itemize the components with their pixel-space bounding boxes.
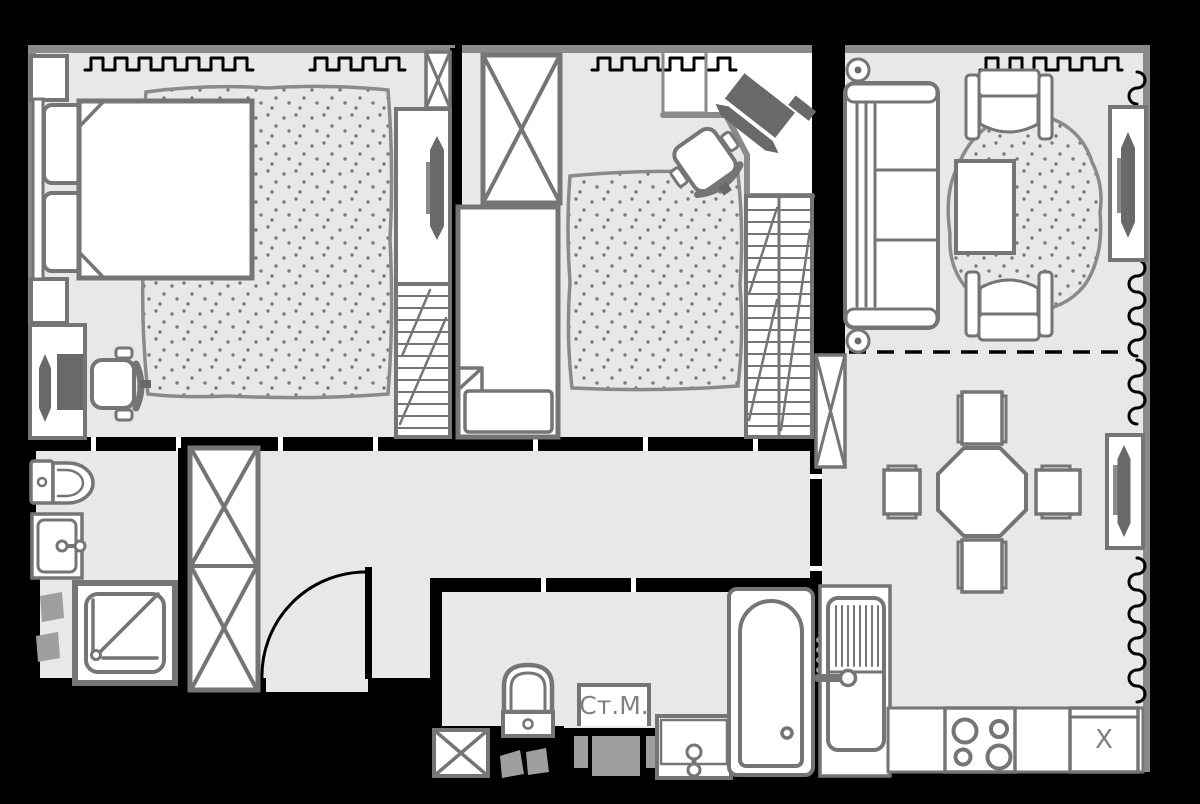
- exterior-wall-top-2: [462, 45, 812, 53]
- faucet-icon: [75, 541, 85, 551]
- toilet: [31, 461, 93, 503]
- mattress: [79, 101, 252, 278]
- stove-4-burners: [945, 708, 1015, 772]
- stool-left: [884, 466, 920, 518]
- floor-plan: X: [0, 0, 1200, 804]
- dining-table-octagon: [938, 448, 1026, 536]
- armchair-top: [966, 70, 1052, 139]
- armchair-bottom: [966, 272, 1052, 340]
- faucet-icon: [57, 541, 67, 551]
- exterior-wall-top: [28, 45, 455, 53]
- washing-machine-label: Ст.М.: [579, 691, 648, 720]
- shower-cabin: [75, 583, 175, 683]
- sliding-door: [430, 136, 444, 240]
- wall-entrance-right: [368, 678, 442, 692]
- shelf-rack: [396, 284, 450, 437]
- wardrobe-with-sliding-door: [396, 109, 450, 284]
- fridge: X: [1070, 708, 1138, 772]
- toilet: [503, 665, 553, 736]
- entrance-threshold: [266, 678, 368, 692]
- faucet-icon: [841, 671, 856, 686]
- wardrobe-crossed-box: [190, 448, 258, 690]
- sofa: [845, 59, 938, 352]
- single-bed: [458, 207, 558, 437]
- nightstand-top: [31, 56, 67, 100]
- headboard: [33, 99, 43, 279]
- wall-rooms-hallway: [28, 437, 812, 451]
- fridge-label: X: [1095, 725, 1113, 755]
- wardrobe-crossed-box: [483, 55, 560, 203]
- kids-room-rug: [568, 171, 742, 389]
- chair-armrest: [116, 348, 132, 358]
- computer: [57, 354, 83, 410]
- pillow: [465, 391, 552, 432]
- shelf-rack: [746, 196, 812, 437]
- faucet-icon: [688, 764, 700, 776]
- faucet-icon: [687, 745, 701, 759]
- nightstand-bottom: [31, 279, 67, 323]
- bathtub: [729, 589, 813, 775]
- washbasin: [657, 716, 731, 778]
- radiator: [1107, 435, 1143, 548]
- chair-seat: [92, 360, 134, 408]
- monitor-icon: [39, 354, 51, 422]
- drain: [92, 651, 101, 660]
- washbasin: [32, 514, 85, 578]
- chair-armrest: [116, 410, 132, 420]
- stool-right: [1036, 466, 1080, 518]
- sofa-armrest: [846, 309, 937, 327]
- coffee-table: [956, 161, 1014, 253]
- exterior-wall-top-3: [845, 45, 1143, 53]
- ventilation-shaft-crossed-box: [816, 355, 845, 467]
- radiator: [1110, 107, 1146, 260]
- crossed-cabinet: [434, 730, 488, 776]
- door-leaf: [365, 567, 372, 679]
- stool-top: [958, 392, 1006, 444]
- drain: [782, 728, 792, 738]
- kitchen-sink-cabinet: [818, 586, 890, 776]
- stool-bottom: [958, 540, 1006, 592]
- bedroom-desk: [30, 325, 85, 438]
- chair-base: [140, 380, 151, 388]
- floor-plan-canvas: X: [0, 0, 1200, 804]
- sofa-armrest: [846, 84, 937, 102]
